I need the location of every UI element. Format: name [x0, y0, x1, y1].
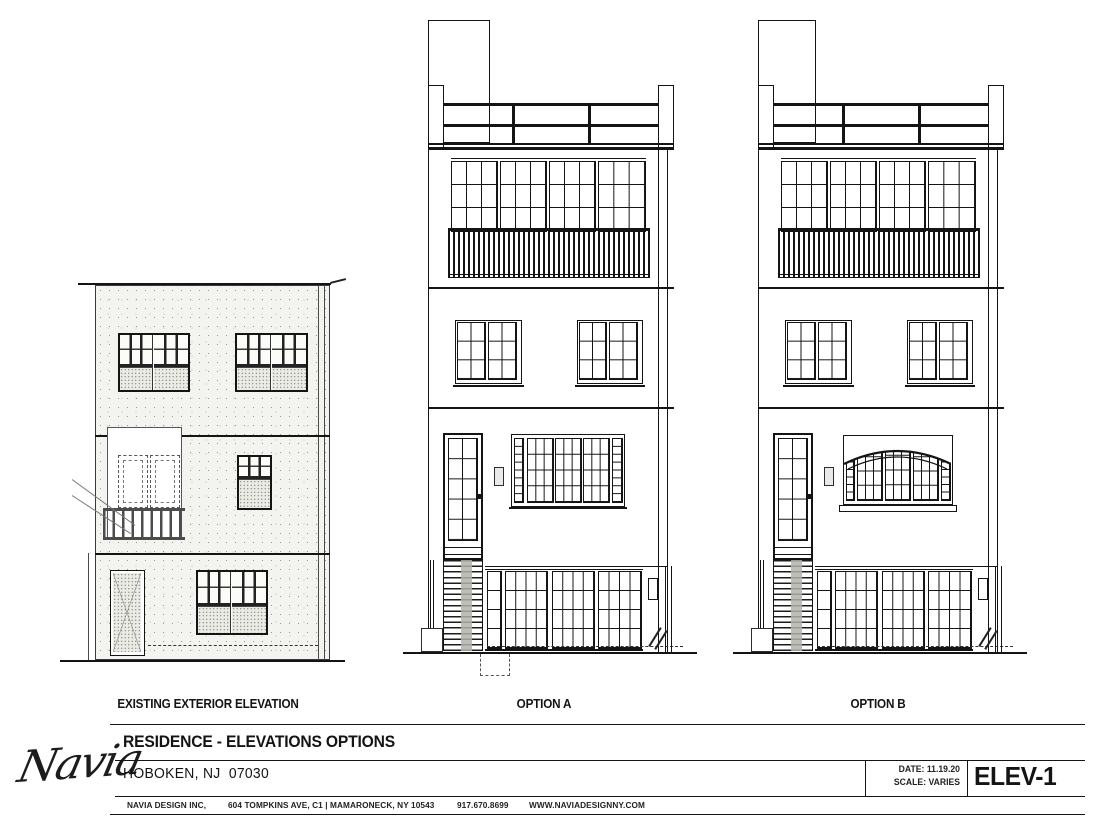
title-block: Navia RESIDENCE - ELEVATIONS OPTIONS HOB…	[0, 718, 1098, 834]
door-knob	[808, 494, 813, 499]
neighbor-wall-line	[1001, 566, 1002, 653]
storefront-panel	[552, 571, 595, 649]
storefront-base	[485, 649, 643, 651]
floor-line	[758, 407, 1004, 409]
option-a-drawing	[403, 18, 703, 680]
scale-label: SCALE: VARIES	[864, 777, 960, 787]
wall-fixture	[978, 578, 988, 600]
firm-address: 604 TOMPKINS AVE, C1 | MAMARONECK, NY 10…	[228, 800, 434, 810]
dashed-grade-line	[817, 646, 1013, 647]
roof-line	[428, 143, 674, 145]
balcony-railing	[778, 228, 980, 278]
storefront-head	[815, 566, 998, 567]
railing-rail	[443, 124, 659, 127]
window-panel	[879, 161, 926, 232]
ground-line	[733, 652, 1027, 654]
window-head-trim	[781, 158, 976, 159]
project-location: HOBOKEN, NJ 07030	[123, 766, 269, 782]
storefront-panel	[817, 571, 832, 649]
wall-fixture	[824, 467, 834, 486]
entry-door	[773, 433, 813, 560]
neighbor-wall-line	[671, 566, 672, 653]
stoop-stairs	[444, 560, 482, 651]
floor-line	[428, 287, 674, 289]
dashed-grade-line	[148, 645, 318, 646]
window	[785, 320, 852, 384]
parlor-window	[511, 434, 625, 507]
existing-elevation-drawing	[78, 283, 368, 663]
railing-post	[918, 103, 921, 145]
neighbor-wall-line	[665, 566, 666, 653]
window-panel	[549, 161, 596, 232]
balcony-door-dashed	[150, 455, 180, 508]
floor-line	[758, 287, 1004, 289]
storefront-panel	[487, 571, 502, 649]
railing-rail	[773, 124, 989, 127]
window	[118, 333, 190, 392]
stoop-base-wall	[421, 628, 443, 652]
window-sill	[453, 385, 524, 387]
entry-door	[110, 570, 145, 656]
ground-line	[60, 660, 345, 662]
ground-line	[403, 652, 697, 654]
title-block-divider	[967, 760, 968, 796]
dashed-grade-line	[487, 646, 683, 647]
window	[235, 333, 308, 392]
wall-fixture	[494, 467, 504, 486]
title-block-rule	[115, 760, 1085, 761]
storefront-head	[485, 569, 643, 570]
firm-name: NAVIA DESIGN INC,	[127, 800, 206, 810]
sheet: EXISTING EXTERIOR ELEVATION OPTION A OPT…	[0, 0, 1098, 834]
parapet-return-line	[658, 150, 659, 653]
railing-post	[758, 85, 774, 148]
window	[455, 320, 522, 384]
arched-parlor-window	[843, 435, 953, 505]
wall-fixture	[648, 578, 658, 600]
below-grade-dashed-box	[480, 654, 510, 676]
option-a-label: OPTION A	[499, 696, 589, 711]
firm-phone: 917.670.8699	[457, 800, 509, 810]
storefront-panel	[505, 571, 548, 649]
stoop-base-wall	[751, 628, 773, 652]
roof-line	[758, 143, 1004, 145]
parapet-return-line	[988, 150, 989, 653]
project-title: RESIDENCE - ELEVATIONS OPTIONS	[123, 732, 395, 752]
railing-post	[428, 85, 444, 148]
stoop-stairs	[774, 560, 812, 651]
window-panel	[598, 161, 646, 232]
railing-rail	[773, 103, 989, 106]
firm-website: WWW.NAVIADESIGNNY.COM	[529, 800, 645, 810]
window-sill	[783, 385, 854, 387]
storefront-panel	[835, 571, 878, 649]
window-head-trim	[451, 158, 646, 159]
window-sill	[509, 507, 627, 509]
window	[237, 455, 272, 510]
window	[577, 320, 643, 384]
storefront-head	[815, 569, 973, 570]
window-arch	[844, 436, 951, 486]
title-block-rule	[110, 724, 1085, 725]
storefront-head	[485, 566, 668, 567]
railing-post	[988, 85, 1004, 148]
balcony-railing	[448, 228, 650, 278]
floor-line	[428, 407, 674, 409]
window-panel	[830, 161, 877, 232]
railing-post	[512, 103, 515, 145]
neighbor-wall-line	[995, 566, 996, 653]
storefront-panel	[598, 571, 642, 649]
cornice-tick	[330, 278, 346, 283]
window	[196, 570, 268, 635]
sheet-number: ELEV-1	[974, 761, 1056, 792]
window-panel	[781, 161, 828, 232]
railing-rail	[443, 103, 659, 106]
storefront-panel	[928, 571, 972, 649]
title-block-rule	[115, 796, 1085, 797]
storefront-panel	[882, 571, 925, 649]
window-sill	[575, 385, 645, 387]
entry-door	[443, 433, 483, 560]
title-block-rule	[110, 814, 1085, 815]
railing-post	[588, 103, 591, 145]
balcony-door-dashed	[118, 455, 148, 508]
window-sill	[905, 385, 975, 387]
date-label: DATE: 11.19.20	[864, 764, 960, 774]
option-b-drawing	[733, 18, 1033, 680]
railing-post	[842, 103, 845, 145]
side-wall-line	[88, 553, 89, 660]
window	[907, 320, 973, 384]
parapet-return-line	[324, 285, 325, 660]
window-panel	[500, 161, 547, 232]
storefront-base	[815, 649, 973, 651]
railing-post	[658, 85, 674, 148]
window-panel	[451, 161, 498, 232]
floor-line	[95, 553, 330, 555]
existing-elevation-label: EXISTING EXTERIOR ELEVATION	[109, 696, 307, 711]
door-knob	[478, 494, 483, 499]
parapet-return-line	[318, 285, 319, 660]
window-sill	[839, 505, 957, 512]
option-b-label: OPTION B	[833, 696, 923, 711]
window-panel	[928, 161, 976, 232]
